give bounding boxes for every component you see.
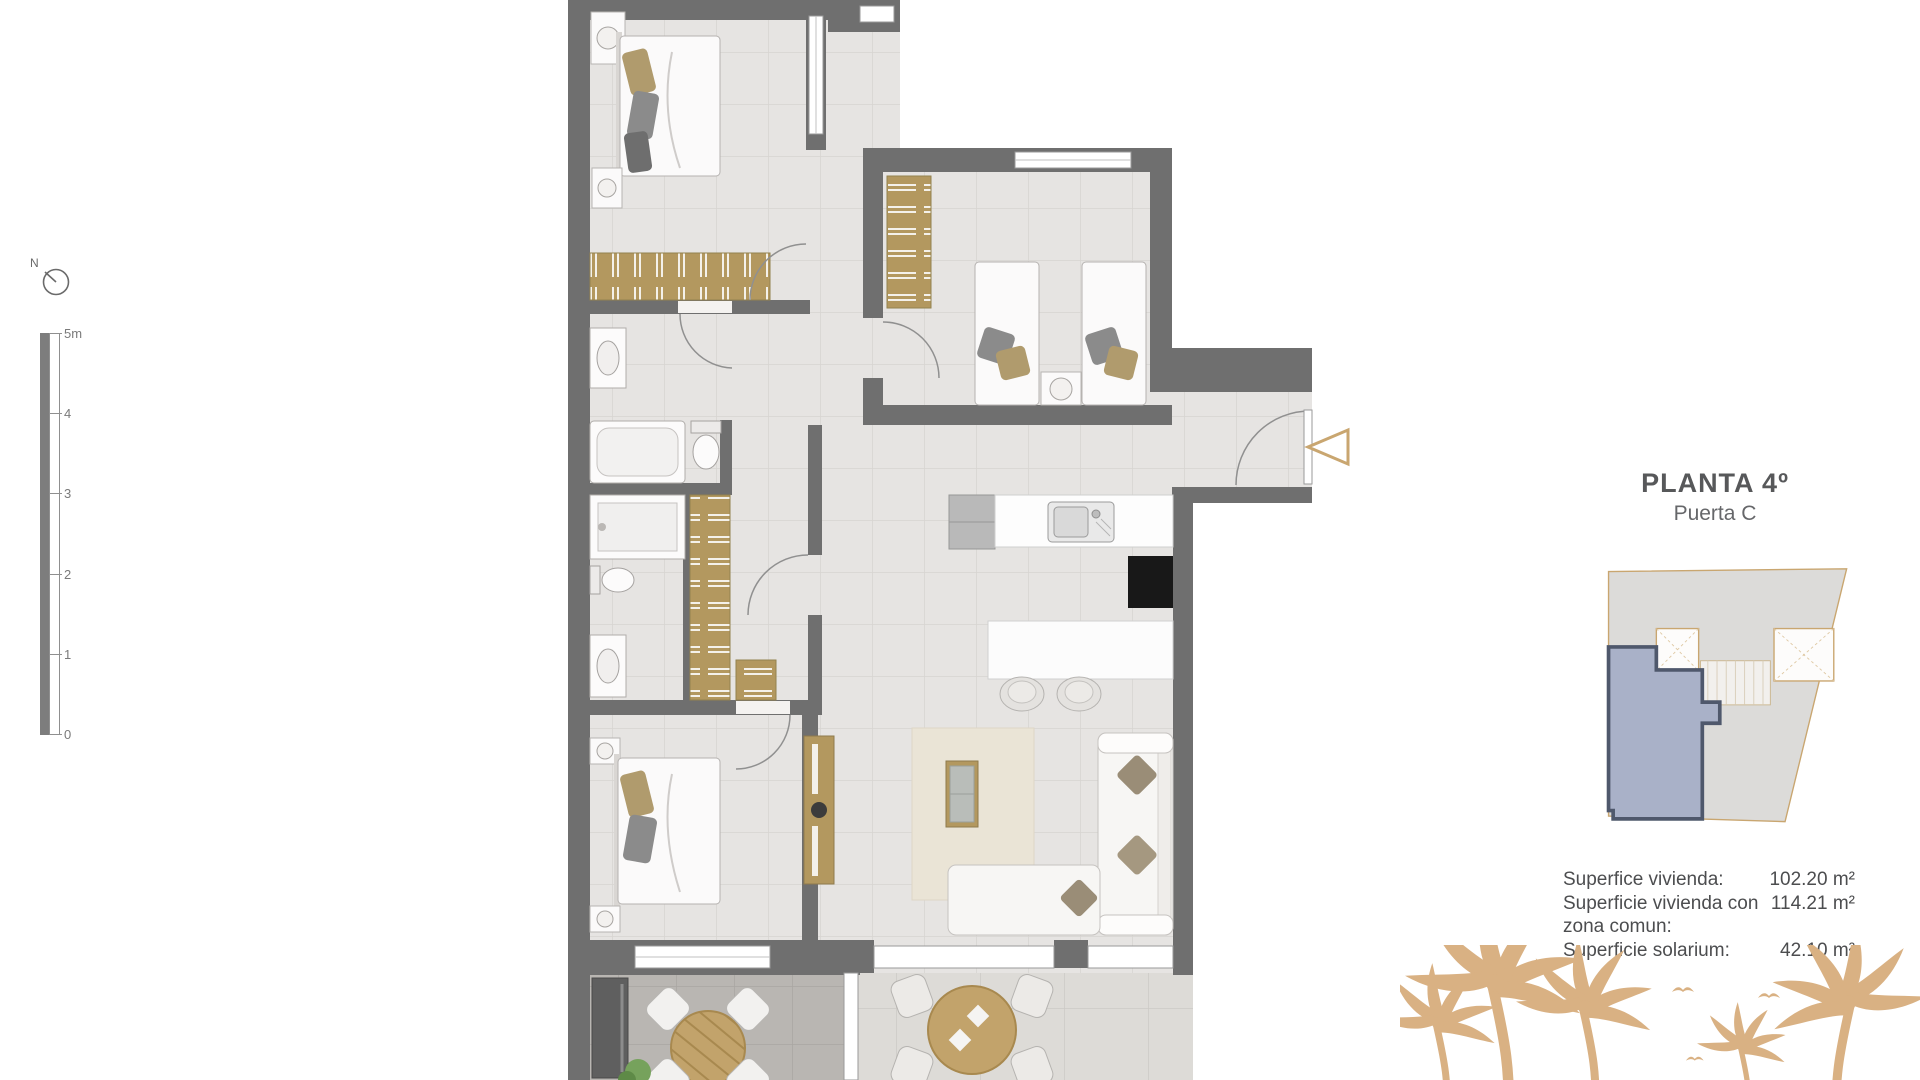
scale-bar-fill: [40, 333, 49, 735]
lamp: [597, 27, 619, 49]
compass: N: [30, 256, 80, 306]
palm-icon: [1773, 945, 1920, 1080]
entrance-arrow-icon: [1308, 430, 1348, 464]
kitchen-island: [988, 621, 1173, 679]
floorplan-page: N 5m 4 3 2 1 0: [0, 0, 1920, 1080]
sliding-door-living-1: [874, 946, 1054, 968]
floor-plan: [560, 0, 1360, 1080]
palm-decoration: [1400, 945, 1920, 1080]
lamp: [597, 743, 613, 759]
door-gap-bath1: [678, 301, 732, 313]
door-gap-bedroom2: [736, 701, 790, 714]
chaise-longue: [948, 865, 1100, 935]
scale-tick-4: 4: [64, 407, 94, 421]
palm-icon: [1697, 1002, 1786, 1080]
bird-icon: [1758, 993, 1780, 998]
coffee-table: [946, 761, 978, 827]
cooktop: [1128, 556, 1173, 608]
scale-bar: 5m 4 3 2 1 0: [40, 333, 100, 735]
bird-icon: [1672, 987, 1694, 992]
scale-tick-0: 0: [64, 728, 94, 742]
window-corner: [860, 6, 894, 22]
toilet: [590, 566, 634, 594]
hall-wardrobe-low: [736, 660, 776, 700]
area-label: Superficie vivienda con zona comun:: [1563, 892, 1768, 938]
scale-tick-2: 2: [64, 568, 94, 582]
area-value: 102.20 m²: [1769, 868, 1855, 891]
area-value: 114.21 m²: [1771, 892, 1855, 938]
kitchen-sink: [1048, 502, 1114, 542]
lamp: [1050, 378, 1072, 400]
terrace-divider-door: [844, 973, 858, 1080]
area-label: Superfice vivienda:: [1563, 868, 1768, 891]
page-subtitle: Puerta C: [1565, 502, 1865, 526]
sliding-door-living-2: [1088, 946, 1173, 968]
wardrobe: [887, 176, 931, 308]
hall-wardrobe: [690, 495, 730, 700]
compass-icon: [38, 264, 74, 300]
title-block: PLANTA 4º Puerta C: [1565, 468, 1865, 526]
key-plan: [1592, 552, 1854, 832]
scale-tick-3: 3: [64, 487, 94, 501]
area-row: Superfice vivienda: 102.20 m²: [1563, 868, 1855, 891]
toilet: [691, 421, 721, 469]
scale-bar-outline: [49, 333, 60, 735]
lamp: [598, 179, 616, 197]
bird-icon: [1686, 1057, 1704, 1061]
tv-mount: [811, 802, 827, 818]
sofa: [1098, 733, 1173, 935]
scale-tick-1: 1: [64, 648, 94, 662]
area-row: Superficie vivienda con zona comun: 114.…: [1563, 892, 1855, 938]
wardrobe: [590, 253, 770, 300]
lamp: [597, 911, 613, 927]
terrace-table: [928, 986, 1016, 1074]
scale-tick-5m: 5m: [64, 327, 94, 341]
unit-highlight: [1609, 647, 1720, 819]
page-title: PLANTA 4º: [1565, 468, 1865, 499]
